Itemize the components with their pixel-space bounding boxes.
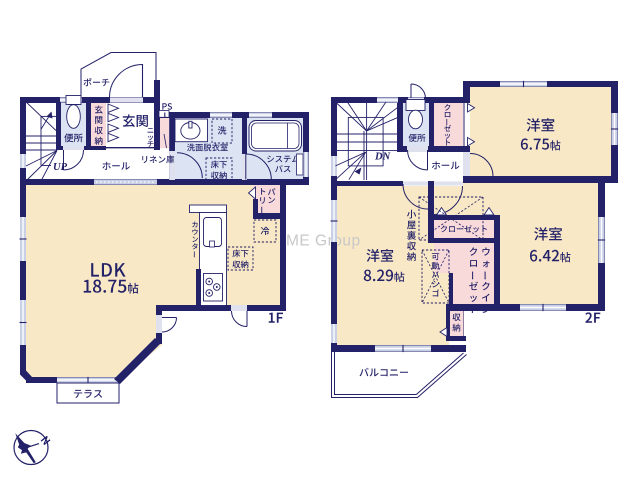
svg-text:UP: UP	[53, 162, 68, 173]
svg-text:DN: DN	[374, 152, 391, 163]
svg-text:ME Group: ME Group	[286, 233, 361, 250]
